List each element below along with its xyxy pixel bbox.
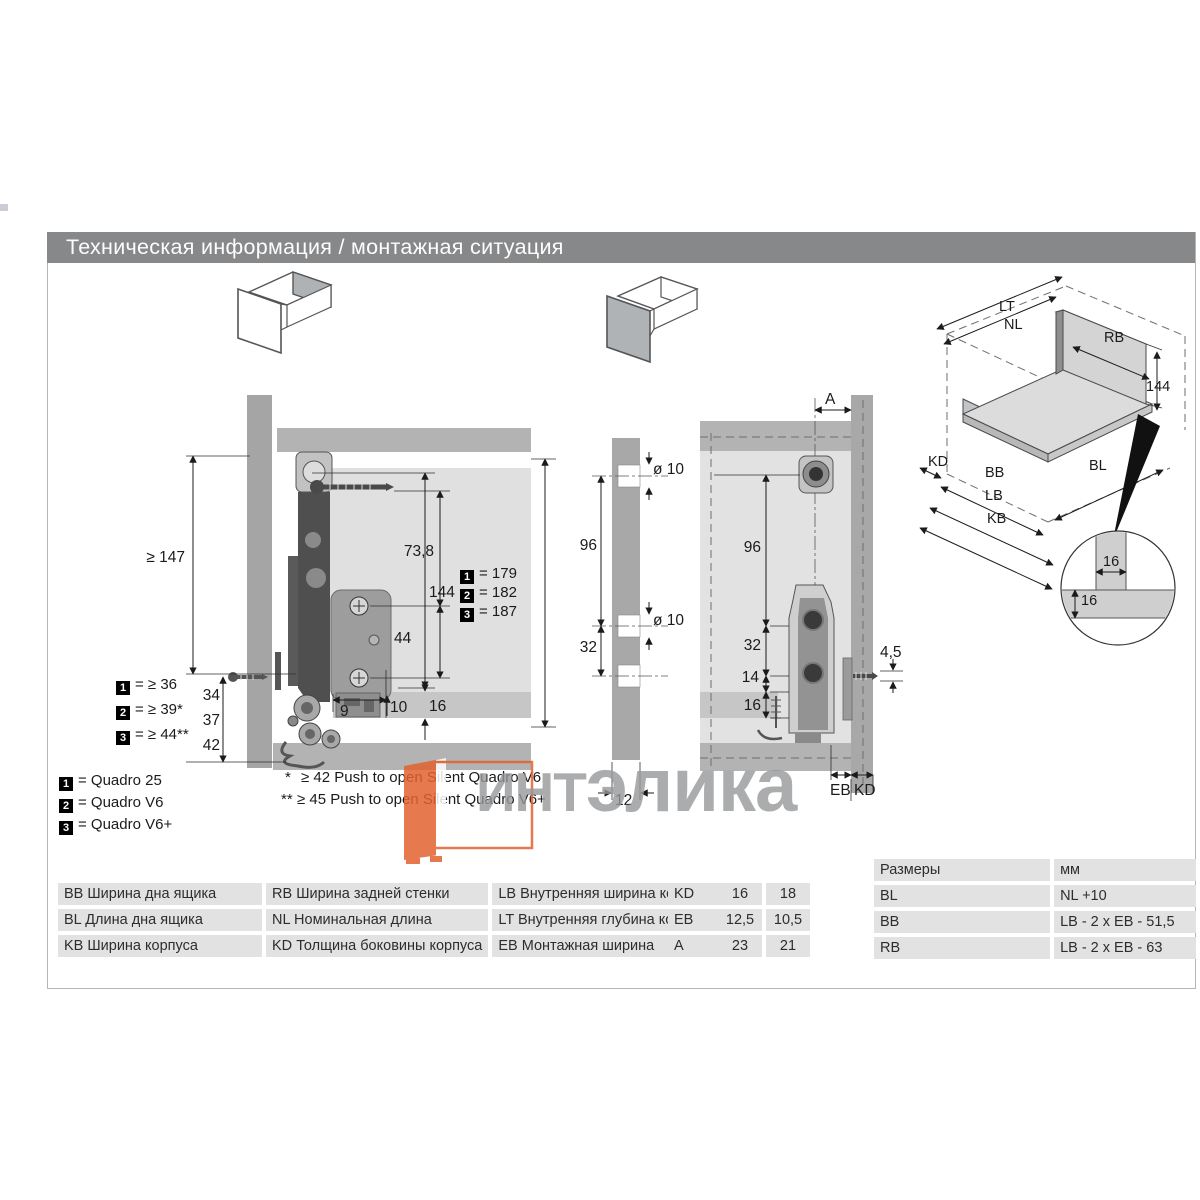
dim-plate-45: 4,5 <box>880 644 902 662</box>
dim-offset-9: 9 <box>340 703 349 721</box>
height-variant-3: 3= 187 <box>460 603 517 622</box>
dim-formula: NL +10 <box>1054 885 1196 907</box>
param-label: EB <box>668 909 714 931</box>
table-row: KB Ширина корпуса KD Толщина боковины ко… <box>58 935 718 957</box>
parameters-table: KD 16 18 EB 12,5 10,5 A 23 21 <box>664 879 814 961</box>
iso-label-kd: KD <box>928 454 948 470</box>
dim-pitch-96-right: 96 <box>737 539 761 557</box>
abbreviation-table: BB Ширина дна ящика RB Ширина задней сте… <box>54 879 722 961</box>
dim-formula: LB - 2 x EB - 63 <box>1054 937 1196 959</box>
dimensions-header: Размеры <box>874 859 1050 881</box>
dim-formula: LB - 2 x EB - 51,5 <box>1054 911 1196 933</box>
quadro-badge: 1 <box>59 777 73 791</box>
table-row: A 23 21 <box>668 935 810 957</box>
height-variant-1: 1= 179 <box>460 565 517 584</box>
param-value: 16 <box>718 883 762 905</box>
detail-dim-h16: 16 <box>1103 554 1119 570</box>
iso-label-bl: BL <box>1089 458 1107 474</box>
param-label: KD <box>668 883 714 905</box>
quadro-legend-1: 1= Quadro 25 <box>59 772 162 791</box>
quadro-badge: 3 <box>59 821 73 835</box>
iso-label-rb: RB <box>1104 330 1124 346</box>
dim-alt-37: 37 <box>198 712 220 730</box>
iso-label-bb: BB <box>985 465 1004 481</box>
variant-badge: 1 <box>460 570 474 584</box>
page-title: Техническая информация / монтажная ситуа… <box>66 235 564 260</box>
table-row: EB 12,5 10,5 <box>668 909 810 931</box>
table-row: RB LB - 2 x EB - 63 <box>874 937 1196 959</box>
dim-hole-pitch: 44 <box>394 630 411 648</box>
variant-badge: 3 <box>460 608 474 622</box>
table-row: BB Ширина дна ящика RB Ширина задней сте… <box>58 883 718 905</box>
abbrev-cell: KB Ширина корпуса <box>58 935 262 957</box>
table-row: KD 16 18 <box>668 883 810 905</box>
title-banner: Техническая информация / монтажная ситуа… <box>47 232 1195 263</box>
technical-drawing <box>0 0 1200 1200</box>
dim-side-height: 144 <box>429 584 455 602</box>
dim-hole-dia-top: ø 10 <box>653 461 684 479</box>
detail-dim-v16: 16 <box>1081 593 1097 609</box>
abbrev-cell: BB Ширина дна ящика <box>58 883 262 905</box>
dim-min-height: ≥ 147 <box>128 549 185 567</box>
param-value: 18 <box>766 883 810 905</box>
quadro-legend-3: 3= Quadro V6+ <box>59 816 172 835</box>
param-label: A <box>668 935 714 957</box>
iso-label-nl: NL <box>1004 317 1023 333</box>
dim-eb: EB <box>830 782 851 800</box>
dim-offset-10: 10 <box>390 699 407 717</box>
dim-pitch-32-right: 32 <box>739 637 761 655</box>
param-value: 23 <box>718 935 762 957</box>
dim-pitch-96-mid: 96 <box>571 537 597 555</box>
quadro-badge: 2 <box>59 799 73 813</box>
table-row: BB LB - 2 x EB - 51,5 <box>874 911 1196 933</box>
dim-offset-14: 14 <box>737 669 759 687</box>
dim-hole-dia-mid: ø 10 <box>653 612 684 630</box>
gap-variant-3: 3= ≥ 44** <box>116 726 189 745</box>
iso-label-lb: LB <box>985 488 1003 504</box>
footnote-marker: ** <box>281 791 297 808</box>
height-variant-2: 2= 182 <box>460 584 517 603</box>
variant-badge: 2 <box>460 589 474 603</box>
param-value: 21 <box>766 935 810 957</box>
dim-code: BL <box>874 885 1050 907</box>
iso-label-144: 144 <box>1146 379 1170 395</box>
param-value: 10,5 <box>766 909 810 931</box>
dim-bottom-thickness: 16 <box>429 698 446 716</box>
param-value: 12,5 <box>718 909 762 931</box>
watermark-text: ИНТэлика <box>476 748 796 824</box>
dim-kd: KD <box>854 782 876 800</box>
quadro-legend-2: 2= Quadro V6 <box>59 794 163 813</box>
dim-bottom-16: 16 <box>739 697 761 715</box>
dimensions-table: Размеры мм BL NL +10 BB LB - 2 x EB - 51… <box>870 855 1200 963</box>
iso-label-kb: KB <box>987 511 1006 527</box>
table-row: BL Длина дна ящика NL Номинальная длина … <box>58 909 718 931</box>
gap-variant-2: 2= ≥ 39* <box>116 701 183 720</box>
drawer-icon-front-panel <box>607 277 697 362</box>
dim-code: RB <box>874 937 1050 959</box>
table-header-row: Размеры мм <box>874 859 1196 881</box>
gap-variant-1: 1= ≥ 36 <box>116 676 177 695</box>
abbrev-cell: NL Номинальная длина <box>266 909 488 931</box>
footnote-marker: * <box>285 769 301 786</box>
abbrev-cell: RB Ширина задней стенки <box>266 883 488 905</box>
abbrev-cell: BL Длина дна ящика <box>58 909 262 931</box>
table-row: BL NL +10 <box>874 885 1196 907</box>
dim-a: A <box>825 391 835 409</box>
dim-alt-34: 34 <box>198 687 220 705</box>
variant-badge: 2 <box>116 706 130 720</box>
iso-label-lt: LT <box>999 299 1015 315</box>
dim-alt-42: 42 <box>198 737 220 755</box>
dim-code: BB <box>874 911 1050 933</box>
dimensions-header: мм <box>1054 859 1196 881</box>
dim-pitch-32-mid: 32 <box>571 639 597 657</box>
variant-badge: 1 <box>116 681 130 695</box>
dim-screw-offset: 73,8 <box>392 543 434 561</box>
rear-section-diagram <box>700 395 878 793</box>
variant-badge: 3 <box>116 731 130 745</box>
drawer-icon-back-panel <box>238 272 331 353</box>
abbrev-cell: KD Толщина боковины корпуса <box>266 935 488 957</box>
